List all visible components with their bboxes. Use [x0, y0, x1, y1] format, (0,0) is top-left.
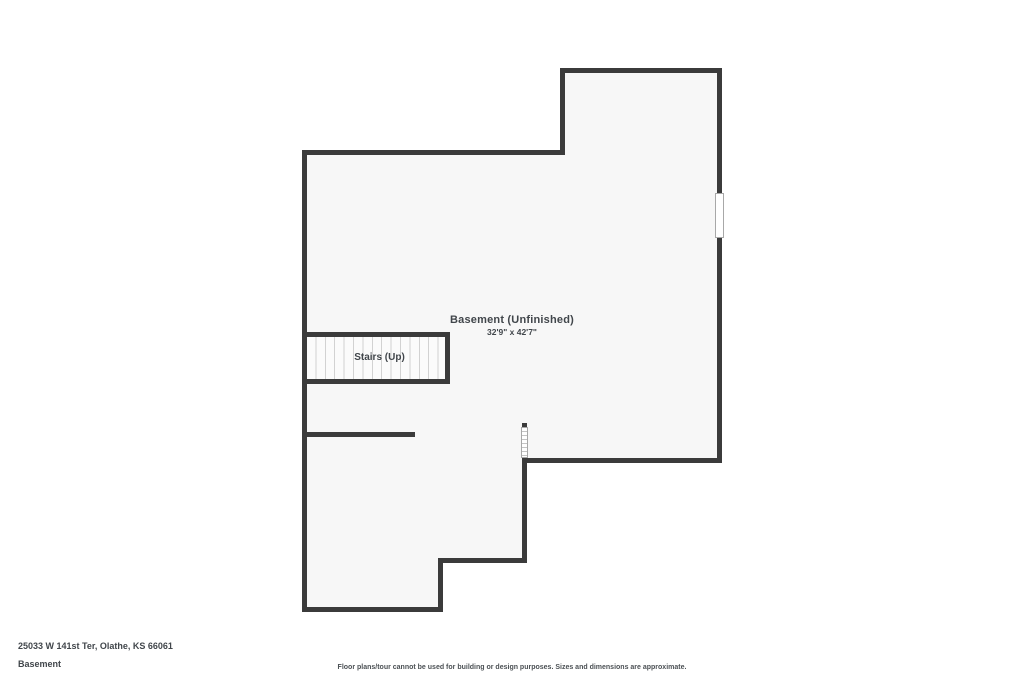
- window-right-wall: [715, 193, 724, 238]
- floor-area-main: [307, 155, 717, 458]
- property-address: 25033 W 141st Ter, Olathe, KS 66061: [18, 641, 173, 651]
- window-interior-wall: [521, 427, 528, 458]
- stairs-label: Stairs (Up): [307, 337, 452, 379]
- wall-top: [560, 68, 722, 73]
- floor-area-lower: [307, 458, 522, 558]
- wall-bottom: [302, 607, 443, 612]
- wall-step-horizontal: [438, 558, 527, 563]
- wall-right-room-bottom: [522, 458, 722, 463]
- room-label: Basement (Unfinished): [307, 314, 717, 326]
- wall-upper-left-horizontal: [302, 150, 565, 155]
- wall-right: [717, 68, 722, 463]
- wall-interior-stub: [302, 432, 415, 437]
- wall-step-vertical: [438, 558, 443, 612]
- floor-area-top-right: [565, 73, 717, 155]
- wall-stairs-bottom: [302, 379, 450, 384]
- disclaimer-text: Floor plans/tour cannot be used for buil…: [0, 664, 1024, 671]
- floor-area-bottom: [307, 558, 438, 607]
- basement-floor-plan: Basement (Unfinished) 32'9" x 42'7" Stai…: [0, 0, 1024, 682]
- room-dimensions: 32'9" x 42'7": [307, 327, 717, 337]
- wall-notch-vertical: [560, 68, 565, 155]
